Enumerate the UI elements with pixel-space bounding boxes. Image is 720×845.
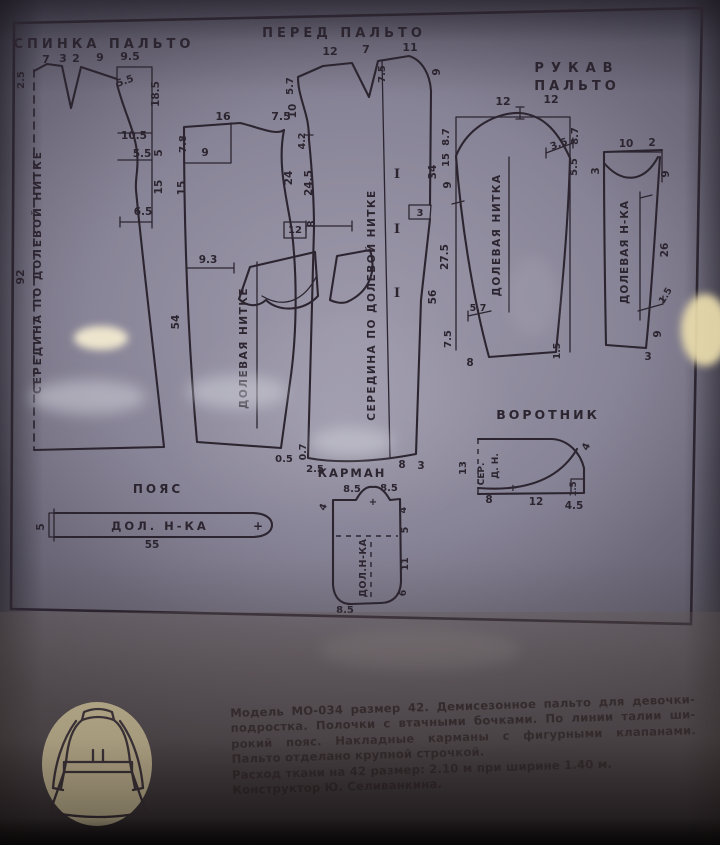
measurement-label: 5 [153,149,165,156]
front-piece [284,56,431,461]
measurement-label: 9 [442,181,454,188]
measurement-label: 92 [14,269,27,284]
measurement-label: 8 [485,494,492,506]
measurement-label: 3 [59,52,67,65]
measurement-label: 26 [659,243,671,258]
measurement-label: 9 [431,68,443,75]
measurement-label: 8 [466,357,473,369]
measurement-label: 2 [72,52,80,65]
back-top-outline [34,64,117,108]
measurement-label: 6 [398,589,409,596]
measurement-label: 12 [495,95,510,108]
measurement-label: 9.3 [199,254,218,266]
glare-spot [74,326,128,350]
measurement-label: 7.8 [178,135,189,153]
measurement-label: 1.5 [552,343,563,360]
pattern-sheet-photo: СПИНКА ПАЛЬТО ПЕРЕД ПАЛЬТО РУКАВ ПАЛЬТО … [0,0,720,845]
back-grainline-label: СЕРЕДИНА ПО ДОЛЕВОЙ НИТКЕ [31,150,44,394]
measurement-label: I [394,167,400,182]
measurement-label: 24.5 [303,170,315,196]
measurement-label: 5.5 [115,73,135,89]
measurement-label: 3 [644,351,651,363]
measurement-label: 5 [400,527,411,534]
measurement-label: 5.7 [470,303,487,314]
pocket-grainline-label: ДОЛ.Н-КА [358,538,369,597]
measurement-label: 13 [458,461,469,475]
measurement-label: I [394,222,400,237]
measurement-label: 11 [402,41,417,54]
measurement-label: 2.5 [306,464,324,475]
measurement-label: 9 [96,51,104,64]
measurement-label: 6.5 [134,206,153,218]
back-title: СПИНКА ПАЛЬТО [14,37,195,52]
measurement-label: 8 [306,220,318,227]
measurement-label: 9 [201,147,208,159]
measurement-label: 56 [427,290,439,305]
measurement-label: 1.5 [569,481,579,496]
measurement-label: 3 [417,208,424,219]
glare-spot [187,375,287,409]
belt-end-ticks [49,509,54,541]
front-facing-line [382,60,390,458]
pocket-flap-left-arc [262,277,316,302]
measurement-label: 15 [176,181,188,196]
measurement-label: 54 [170,315,182,330]
coat-logo [42,702,152,826]
measurement-label: 15 [153,180,165,195]
glare-spot [30,380,146,414]
measurement-label: 8.7 [570,127,581,145]
glare-spot [310,427,394,457]
measurement-label: 8.5 [336,605,354,616]
measurement-label: 24 [283,171,295,186]
measurement-label: Д. Н. [491,453,501,479]
glare-spot [320,630,520,670]
measurement-label: 4.5 [565,500,584,512]
measurement-label: 9.5 [120,50,140,63]
collar-title: ВОРОТНИК [496,407,600,422]
measurement-label: + [369,497,377,508]
measurement-label: 16 [215,110,231,123]
front-title: ПЕРЕД ПАЛЬТО [262,26,426,41]
measurement-label: 34 [427,165,439,180]
measurement-label: 9 [660,170,672,177]
measurement-label: + [509,483,517,494]
measurement-label: + [253,519,263,533]
measurement-label: 5 [35,523,47,530]
measurement-label: 12 [322,45,337,58]
measurement-label: 10 [287,104,299,119]
measurement-label: 12 [529,496,544,508]
undersleeve-outline [604,150,662,348]
measurement-label: 8.7 [441,128,452,146]
glare-spot [681,294,720,366]
measurement-label: 8.5 [380,483,398,494]
measurement-label: 0.5 [275,454,293,465]
measurement-label: 11 [400,557,411,570]
measurement-label: СЕР. [477,463,487,486]
measurement-label: 4 [317,502,330,512]
measurement-label: I [394,286,400,301]
undersleeve-piece [604,150,663,348]
undersleeve-cap-curve [604,157,658,178]
measurement-label: 1.5 [657,286,675,306]
measurement-label: 10.5 [121,130,147,142]
measurement-label: 15 [441,153,452,167]
measurement-label: 5.5 [133,148,152,160]
measurement-label: 3 [590,167,602,174]
measurement-label: 7 [362,43,370,56]
measurement-label: 8 [398,459,405,471]
belt-grainline-label: ДОЛ. Н-КА [111,519,209,533]
measurement-label: 4 [398,506,409,513]
measurement-label: 7 [42,53,50,66]
measurement-label: 9 [652,330,664,337]
measurement-label: 0.7 [298,444,309,461]
sleeve-grainline-label: ДОЛЕВАЯ НИТКА [491,174,503,297]
pocket-title: КАРМАН [318,466,387,480]
measurement-label: 3 [417,460,424,472]
measurement-label: 4.2 [297,133,308,150]
sleeve-title-line1: РУКАВ [534,61,619,76]
undersleeve-grainline-label: ДОЛЕВАЯ Н-КА [619,200,631,304]
measurement-label: 7.5 [443,330,454,348]
side-measure-lines [184,123,234,273]
measurement-label: 18.5 [150,81,162,107]
measurement-label: 5.7 [285,77,296,95]
measurement-label: 5.5 [569,158,580,176]
belt-title: ПОЯС [133,482,183,496]
caption-block: Модель МО-034 размер 42. Демисезонное па… [230,692,698,798]
logo-circle [42,702,152,826]
measurement-label: 55 [145,539,160,551]
measurement-label: 12 [543,93,558,106]
measurement-label: 10 [619,138,634,150]
measurement-label: 27.5 [439,244,451,270]
sleeve-title-line2: ПАЛЬТО [534,79,620,94]
measurement-label: 7.5 [377,65,388,83]
glare-spot [507,256,559,336]
measurement-label: 2.5 [16,71,27,89]
front-outline [298,56,431,461]
measurement-label: 12 [288,225,302,236]
pocket-flap-left [239,252,318,309]
measurement-label: 2 [648,137,655,149]
measurement-label: 8.5 [343,484,361,495]
measurement-label: 4 [580,441,593,452]
front-grainline-label: СЕРЕДИНА ПО ДОЛЕВОЙ НИТКЕ [365,189,378,420]
